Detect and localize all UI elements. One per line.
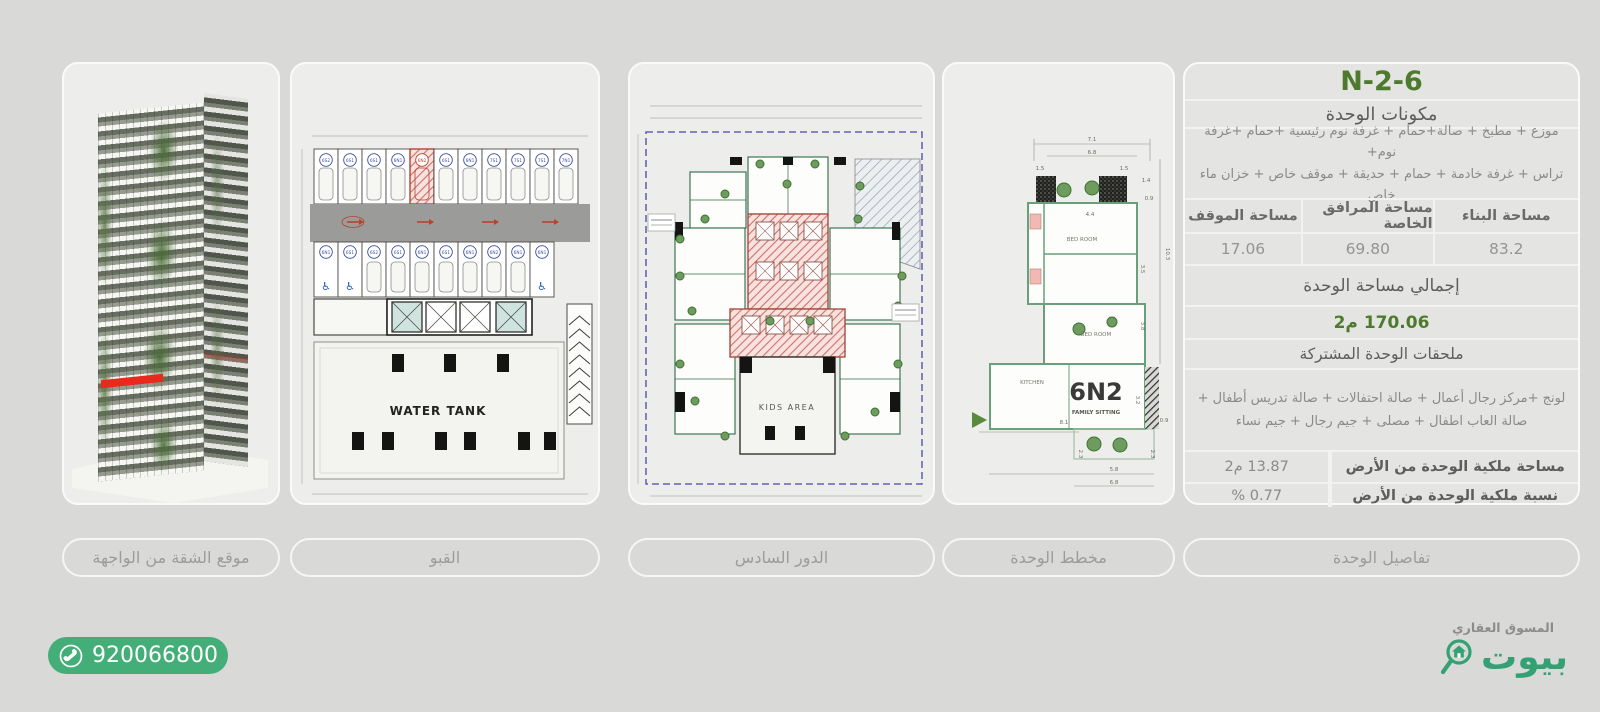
svg-text:6N1: 6N1	[466, 158, 475, 164]
unit-code-label: 6N2	[1069, 378, 1122, 406]
areas-value-row: 83.2 69.80 17.06	[1185, 232, 1578, 264]
svg-text:10.3: 10.3	[1164, 248, 1170, 261]
svg-text:4.4: 4.4	[1086, 212, 1095, 218]
building-area-value: 83.2	[1435, 234, 1578, 264]
caption-details: تفاصيل الوحدة	[1183, 538, 1580, 577]
components-line1: موزع + مطبخ + صالة+حمام + غرفة نوم رئيسي…	[1193, 121, 1570, 164]
brand-magnifier-house-icon	[1439, 637, 1475, 679]
caption-unit-plan: مخطط الوحدة	[942, 538, 1175, 577]
basement-plan-panel: 6S26S16S16N16N26S16N17S17S17S17N1 6N1♿6S…	[290, 62, 600, 505]
svg-text:3.5: 3.5	[1139, 265, 1145, 274]
building-render-panel	[62, 62, 280, 505]
shared-amenities-text: لونج +مركز رجال أعمال + صالة احتفالات + …	[1185, 368, 1578, 450]
land-area-value: 13.87 م2	[1185, 452, 1330, 482]
unit-plan-panel: BED ROOM BED ROOM KITCHEN 6N2 FAMILY SIT…	[942, 62, 1175, 505]
svg-text:8.1: 8.1	[1060, 420, 1069, 426]
sixth-floor-plan-drawing: KIDS AREA	[630, 64, 935, 505]
building-side-face	[204, 93, 248, 466]
reference-tag-right	[892, 304, 919, 321]
svg-text:6S1: 6S1	[370, 158, 378, 164]
kids-area-label: KIDS AREA	[759, 403, 815, 412]
phone-icon	[58, 643, 84, 669]
basement-plan-drawing: 6S26S16S16N16N26S16N17S17S17S17N1 6N1♿6S…	[292, 64, 600, 505]
svg-text:0.9: 0.9	[1160, 418, 1169, 424]
total-area-header: إجمالي مساحة الوحدة	[1185, 264, 1578, 305]
svg-text:7S1: 7S1	[538, 158, 546, 164]
sixth-floor-plan-panel: KIDS AREA	[628, 62, 935, 505]
svg-text:6N1: 6N1	[418, 250, 427, 256]
svg-text:6N1: 6N1	[322, 250, 331, 256]
svg-text:3.2: 3.2	[1134, 396, 1140, 405]
svg-text:6N2: 6N2	[490, 250, 499, 256]
bathroom-1	[1030, 214, 1041, 229]
svg-text:0.9: 0.9	[1145, 196, 1154, 202]
unit-plan-drawing: BED ROOM BED ROOM KITCHEN 6N2 FAMILY SIT…	[944, 64, 1175, 505]
shared-line1: لونج +مركز رجال أعمال + صالة احتفالات + …	[1198, 387, 1566, 410]
caption-building: موقع الشقة من الواجهة	[62, 538, 280, 577]
unit-sheet: 6S26S16S16N16N26S16N17S17S17S17N1 6N1♿6S…	[0, 0, 1600, 712]
facilities-area-header: مساحة المرافق الخاصة	[1303, 200, 1435, 232]
highlighted-floor-marker-side	[204, 353, 248, 363]
bedroom1-label: BED ROOM	[1067, 237, 1098, 243]
svg-text:6S2: 6S2	[370, 250, 378, 256]
svg-text:3.8: 3.8	[1139, 322, 1145, 331]
shared-line2: صالة العاب اطفال + مصلى + جيم رجال + جيم…	[1236, 410, 1528, 433]
highlighted-floor-marker	[101, 374, 162, 388]
svg-text:7.1: 7.1	[1088, 137, 1097, 143]
areas-header-row: مساحة البناء مساحة المرافق الخاصة مساحة …	[1185, 198, 1578, 232]
party-wall-hatch	[1145, 367, 1159, 429]
svg-text:6S1: 6S1	[442, 158, 450, 164]
facilities-area-value: 69.80	[1303, 234, 1435, 264]
land-pct-value: 0.77 %	[1185, 484, 1330, 507]
shared-amenities-header: ملحقات الوحدة المشتركة	[1185, 338, 1578, 368]
building-front-face	[98, 102, 204, 481]
svg-text:6N1: 6N1	[394, 158, 403, 164]
land-ownership-row: مساحة ملكية الوحدة من الأرض 13.87 م2	[1185, 450, 1578, 482]
svg-text:6S2: 6S2	[322, 158, 330, 164]
svg-text:1.5: 1.5	[1120, 166, 1129, 172]
svg-text:6.8: 6.8	[1110, 480, 1119, 486]
land-pct-label: نسبة ملكية الوحدة من الأرض	[1330, 484, 1578, 507]
land-area-label: مساحة ملكية الوحدة من الأرض	[1330, 452, 1578, 482]
kitchen-label: KITCHEN	[1020, 380, 1044, 386]
components-description: موزع + مطبخ + صالة+حمام + غرفة نوم رئيسي…	[1185, 127, 1578, 198]
svg-text:6S1: 6S1	[346, 250, 354, 256]
svg-text:6S1: 6S1	[394, 250, 402, 256]
building-area-header: مساحة البناء	[1435, 200, 1578, 232]
caption-sixth-floor: الدور السادس	[628, 538, 935, 577]
brand-name: بيوت	[1481, 640, 1568, 676]
svg-text:7N1: 7N1	[562, 158, 571, 164]
total-area-value: 170.06 م2	[1185, 305, 1578, 338]
svg-text:6S1: 6S1	[346, 158, 354, 164]
water-tank-label: WATER TANK	[390, 404, 487, 418]
parking-row-top: 6S26S16S16N16N26S16N17S17S17S17N1	[314, 149, 578, 204]
family-sitting-label: FAMILY SITTING	[1072, 410, 1121, 416]
svg-text:6.8: 6.8	[1088, 150, 1097, 156]
parking-row-bottom: 6N1♿6S1♿6S26S16N16S16N16N26N16N1♿	[314, 242, 554, 297]
entry-arrow-icon	[972, 412, 987, 428]
reference-tag-left	[648, 214, 675, 231]
phone-number: 920066800	[92, 643, 218, 668]
ramp	[567, 304, 592, 424]
svg-text:6N1: 6N1	[538, 250, 547, 256]
svg-text:6S1: 6S1	[442, 250, 450, 256]
svg-text:7S1: 7S1	[490, 158, 498, 164]
svg-text:♿: ♿	[345, 280, 355, 293]
svg-text:7S1: 7S1	[514, 158, 522, 164]
building-tower-image	[64, 64, 280, 505]
phone-contact-button[interactable]: 920066800	[48, 637, 228, 674]
svg-text:2.3: 2.3	[1149, 450, 1155, 459]
parking-area-header: مساحة الموقف	[1185, 200, 1303, 232]
unit-title: 6-N-2	[1185, 64, 1578, 99]
caption-basement: القبو	[290, 538, 600, 577]
svg-text:1.5: 1.5	[1036, 166, 1045, 172]
svg-text:6N1: 6N1	[466, 250, 475, 256]
svg-text:2.3: 2.3	[1077, 450, 1083, 459]
bathroom-2	[1030, 269, 1041, 284]
bedroom2-label: BED ROOM	[1081, 332, 1112, 338]
svg-text:♿: ♿	[537, 280, 547, 293]
svg-text:6N1: 6N1	[514, 250, 523, 256]
svg-text:1.4: 1.4	[1142, 178, 1151, 184]
parking-area-value: 17.06	[1185, 234, 1303, 264]
svg-text:♿: ♿	[321, 280, 331, 293]
svg-text:6N2: 6N2	[418, 158, 427, 164]
storage-room	[314, 299, 387, 335]
unit-details-panel: 6-N-2 مكونات الوحدة موزع + مطبخ + صالة+ح…	[1183, 62, 1580, 505]
brand-block: المسوق العقاري بيوت	[1392, 602, 1568, 694]
land-percentage-row: نسبة ملكية الوحدة من الأرض 0.77 %	[1185, 482, 1578, 507]
marketer-label: المسوق العقاري	[1452, 620, 1554, 635]
drive-aisle	[310, 204, 590, 242]
svg-text:5.8: 5.8	[1110, 467, 1119, 473]
